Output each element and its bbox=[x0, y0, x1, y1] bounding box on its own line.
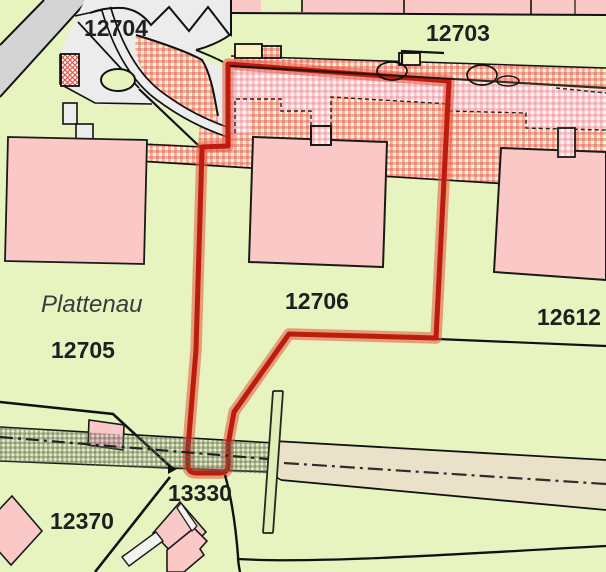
svg-text:12612: 12612 bbox=[537, 304, 601, 330]
svg-text:12704: 12704 bbox=[84, 15, 148, 41]
svg-text:12370: 12370 bbox=[50, 508, 114, 534]
svg-text:12706: 12706 bbox=[285, 288, 349, 314]
svg-text:Plattenau: Plattenau bbox=[41, 291, 142, 318]
svg-text:13330: 13330 bbox=[168, 480, 232, 506]
svg-text:12703: 12703 bbox=[426, 20, 490, 46]
svg-text:12705: 12705 bbox=[51, 337, 115, 363]
